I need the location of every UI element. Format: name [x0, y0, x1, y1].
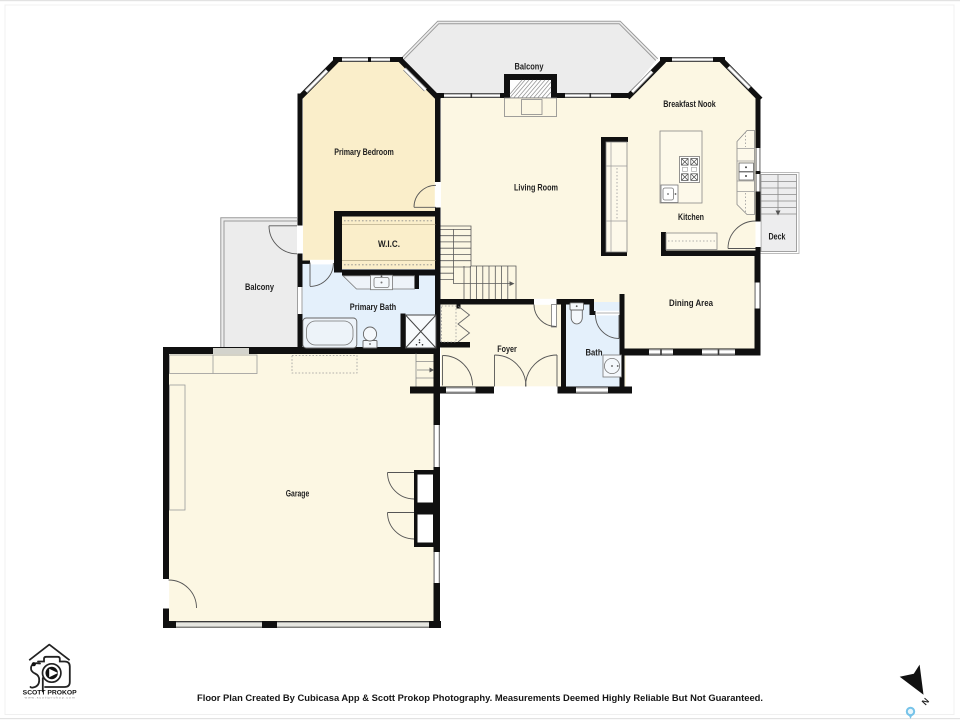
svg-text:Kitchen: Kitchen [678, 212, 704, 222]
svg-text:Primary Bedroom: Primary Bedroom [334, 147, 394, 157]
svg-text:Floor Plan Created By Cubicasa: Floor Plan Created By Cubicasa App & Sco… [197, 692, 763, 703]
svg-text:Deck: Deck [769, 232, 786, 242]
svg-text:Breakfast Nook: Breakfast Nook [663, 99, 716, 109]
svg-text:Dining Area: Dining Area [669, 298, 713, 308]
svg-text:Balcony: Balcony [245, 282, 274, 292]
svg-text:Balcony: Balcony [515, 62, 544, 72]
svg-text:Primary Bath: Primary Bath [350, 302, 397, 312]
svg-text:Foyer: Foyer [497, 344, 517, 354]
svg-text:Garage: Garage [286, 489, 310, 499]
svg-text:W.I.C.: W.I.C. [378, 239, 400, 249]
svg-text:Living Room: Living Room [514, 183, 558, 193]
svg-text:w w w . s c o t t p r o k o p: w w w . s c o t t p r o k o p . c o m [25, 695, 76, 699]
svg-text:Bath: Bath [586, 348, 603, 358]
